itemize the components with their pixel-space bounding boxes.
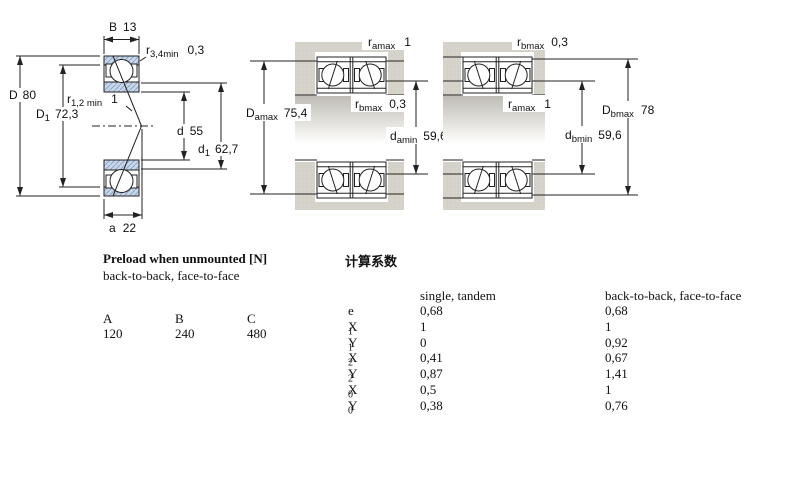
dim-label-r12min: r1,2 min1 (67, 92, 118, 109)
preload-value-a: 120 (103, 326, 123, 342)
dim-label-D: D80 (9, 88, 36, 102)
preload-subtitle: back-to-back, face-to-face (103, 268, 333, 284)
factor-row-y0: Y0 0,380,76 (345, 398, 785, 414)
preload-value-b: 240 (175, 326, 195, 342)
dim-label-d1: d162,7 (198, 142, 239, 159)
factor-row-x1: X1 11 (345, 319, 785, 335)
dim-label-a: a22 (109, 221, 136, 235)
factor-row-x2: X2 0,410,67 (345, 350, 785, 366)
factor-row-e: e 0,680,68 (345, 303, 785, 319)
bearing-datasheet-page: B13 r3,4min0,3 D80 D172,3 r1,2 min1 d (0, 0, 800, 500)
preload-table: Preload when unmounted [N] back-to-back,… (103, 251, 333, 324)
factor-row-y1: Y1 00,92 (345, 335, 785, 351)
preload-value-c: 480 (247, 326, 267, 342)
factor-row-x0: X0 0,51 (345, 382, 785, 398)
technical-drawings: B13 r3,4min0,3 D80 D172,3 r1,2 min1 d (0, 0, 800, 245)
factors-col2-header: back-to-back, face-to-face (605, 288, 741, 304)
single-bearing-diagram: B13 r3,4min0,3 D80 D172,3 r1,2 min1 d (6, 20, 242, 235)
preload-header-c: C (247, 311, 256, 327)
factors-rows: e 0,680,68 X1 11 Y1 00,92 X2 0,410,67 Y2… (345, 303, 785, 414)
calculation-factors-table: 计算系数 single, tandem back-to-back, face-t… (345, 251, 785, 414)
factors-title: 计算系数 (345, 251, 785, 270)
dim-label-B: B13 (109, 20, 137, 34)
paired-bearing-diagram-a: Damax75,4 damin59,6 ramax1 rbmax0,3 (243, 33, 452, 210)
paired-bearing-diagram-b: Dbmax78 dbmin59,6 rbmax0,3 ramax1 (443, 33, 660, 210)
dim-label-D1: D172,3 (36, 107, 79, 124)
factor-row-y2: Y2 0,871,41 (345, 366, 785, 382)
dim-label-r34min: r3,4min0,3 (146, 43, 205, 60)
dim-label-d: d55 (177, 124, 203, 138)
factors-col1-header: single, tandem (420, 288, 496, 304)
preload-title: Preload when unmounted [N] (103, 251, 333, 267)
preload-header-a: A (103, 311, 112, 327)
preload-header-b: B (175, 311, 184, 327)
